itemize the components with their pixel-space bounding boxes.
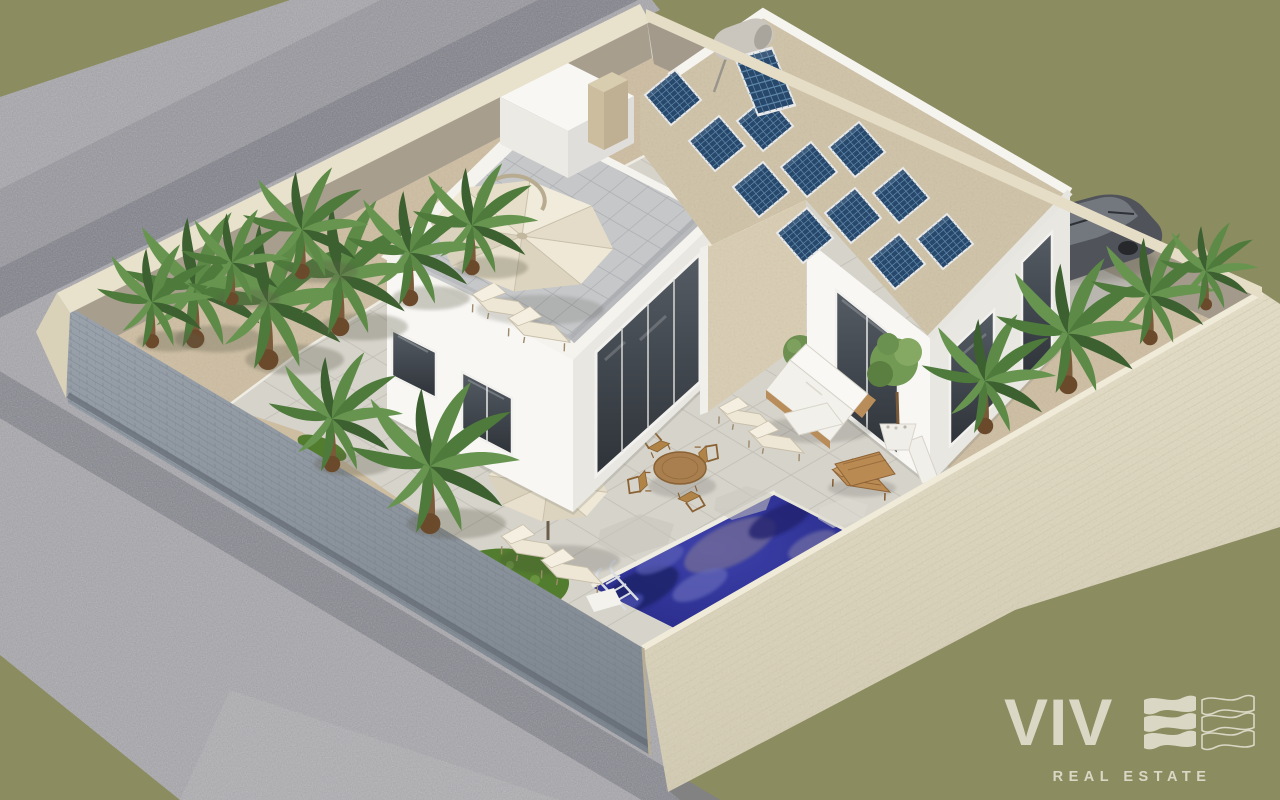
logo-wordmark: VIV <box>1004 685 1113 759</box>
roof-chimney <box>588 72 628 150</box>
logo-e-icon <box>1144 696 1196 750</box>
render-viewport: VIV REAL ESTATE <box>0 0 1280 800</box>
logo-tagline: REAL ESTATE <box>1053 769 1212 785</box>
aerial-render: VIV REAL ESTATE <box>0 0 1280 800</box>
